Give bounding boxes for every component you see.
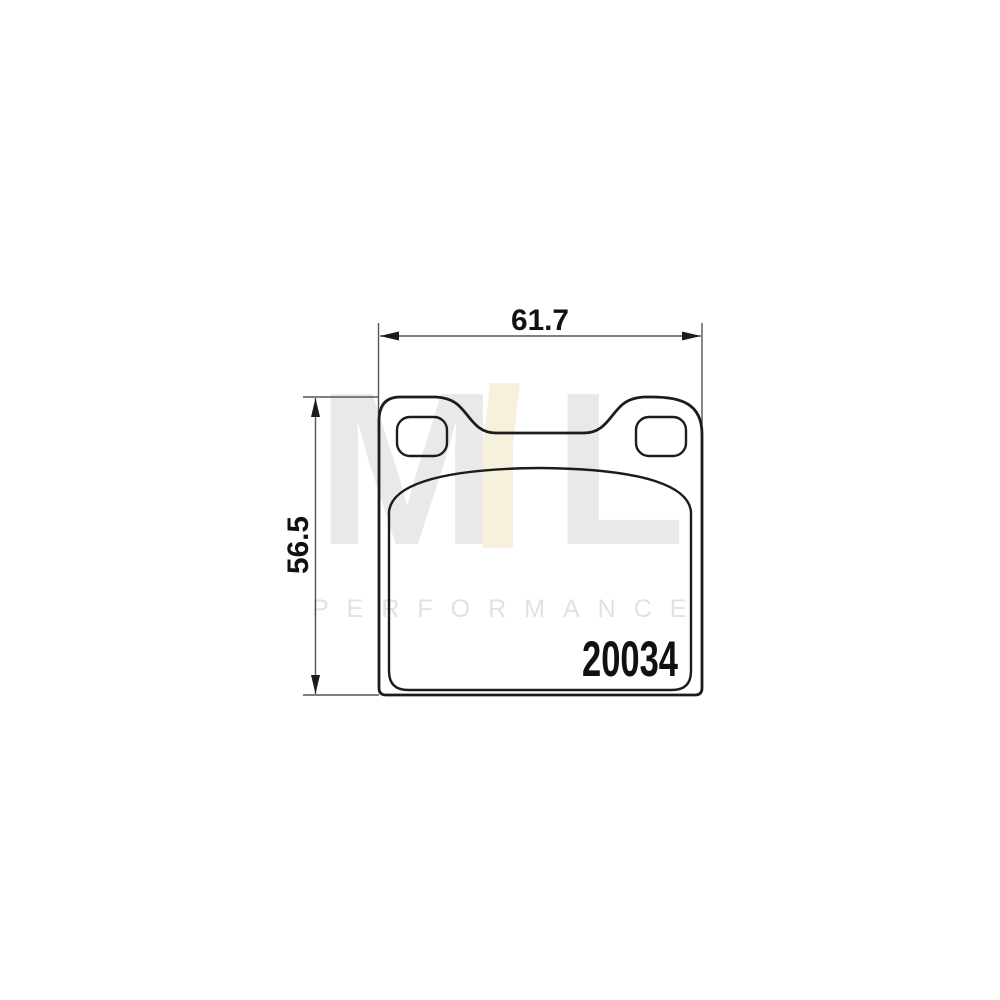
product-image: M L PERFORMANCE 61.7 56.5 — [0, 0, 1000, 1000]
watermark-letter-m: M — [316, 348, 498, 591]
arrowhead-bottom-icon — [311, 675, 320, 694]
height-dimension-value: 56.5 — [282, 516, 315, 574]
watermark: M L PERFORMANCE — [312, 348, 704, 623]
watermark-slash — [483, 383, 520, 548]
width-dimension-value: 61.7 — [511, 304, 569, 337]
brake-pad-technical-drawing: M L PERFORMANCE 61.7 56.5 — [0, 0, 1000, 1000]
part-number: 20034 — [582, 631, 678, 687]
arrowhead-left-icon — [380, 332, 399, 341]
arrowhead-right-icon — [682, 332, 701, 341]
watermark-performance-text: PERFORMANCE — [312, 595, 704, 623]
